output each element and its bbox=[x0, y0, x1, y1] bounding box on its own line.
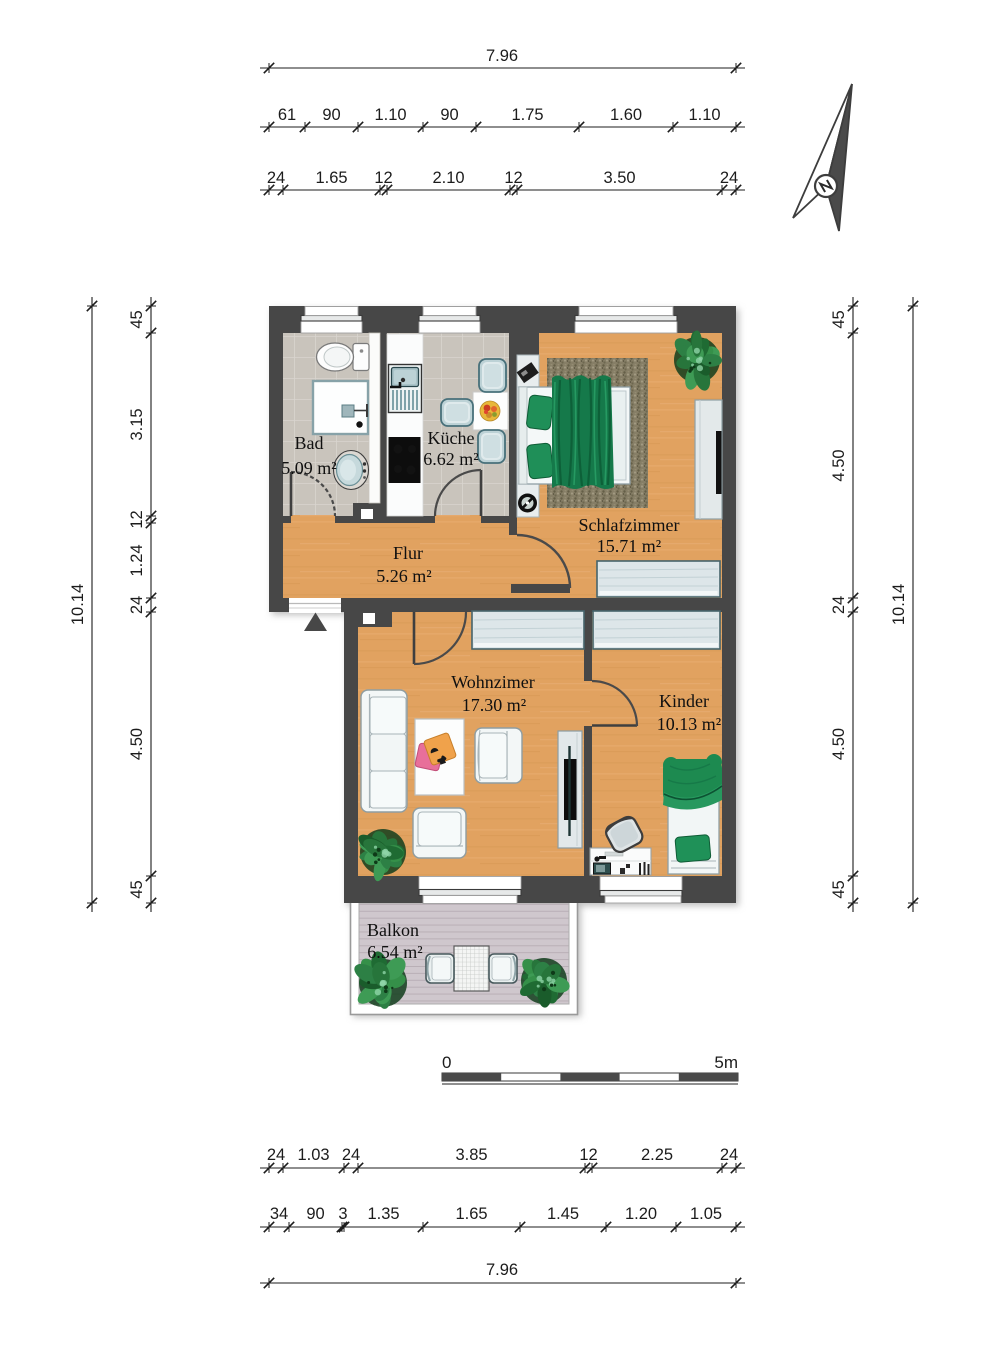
svg-text:12: 12 bbox=[504, 169, 522, 187]
svg-text:45: 45 bbox=[830, 310, 848, 328]
svg-text:Schlafzimmer: Schlafzimmer bbox=[579, 515, 680, 535]
svg-text:3: 3 bbox=[338, 1205, 347, 1223]
svg-text:17.30 m²: 17.30 m² bbox=[462, 695, 526, 715]
svg-text:Bad: Bad bbox=[295, 433, 324, 453]
svg-text:4.50: 4.50 bbox=[830, 449, 848, 481]
svg-text:24: 24 bbox=[267, 1146, 285, 1164]
svg-text:1.20: 1.20 bbox=[625, 1205, 657, 1223]
svg-text:1.10: 1.10 bbox=[688, 106, 720, 124]
svg-text:6.54 m²: 6.54 m² bbox=[367, 942, 422, 962]
svg-text:12: 12 bbox=[374, 169, 392, 187]
svg-text:34: 34 bbox=[270, 1205, 288, 1223]
svg-text:6.62 m²: 6.62 m² bbox=[423, 449, 478, 469]
svg-text:45: 45 bbox=[128, 880, 146, 898]
svg-text:2.10: 2.10 bbox=[432, 169, 464, 187]
svg-text:12: 12 bbox=[579, 1146, 597, 1164]
svg-text:4.50: 4.50 bbox=[830, 728, 848, 760]
svg-text:5m: 5m bbox=[714, 1053, 738, 1072]
svg-text:5.09 m²: 5.09 m² bbox=[281, 458, 336, 478]
svg-text:7.96: 7.96 bbox=[486, 1261, 518, 1279]
svg-text:Flur: Flur bbox=[393, 543, 423, 563]
svg-text:3.15: 3.15 bbox=[128, 408, 146, 440]
svg-text:Wohnzimer: Wohnzimer bbox=[451, 672, 535, 692]
svg-text:24: 24 bbox=[128, 596, 146, 614]
svg-text:24: 24 bbox=[720, 1146, 738, 1164]
svg-text:1.05: 1.05 bbox=[690, 1205, 722, 1223]
svg-text:3.50: 3.50 bbox=[603, 169, 635, 187]
svg-text:24: 24 bbox=[830, 596, 848, 614]
svg-text:Küche: Küche bbox=[428, 428, 475, 448]
svg-text:1.35: 1.35 bbox=[367, 1205, 399, 1223]
svg-text:1.24: 1.24 bbox=[128, 544, 146, 576]
svg-text:15.71 m²: 15.71 m² bbox=[597, 536, 661, 556]
svg-text:4.50: 4.50 bbox=[128, 728, 146, 760]
svg-text:12: 12 bbox=[128, 510, 146, 528]
svg-text:1.75: 1.75 bbox=[511, 106, 543, 124]
svg-text:45: 45 bbox=[830, 880, 848, 898]
svg-text:Kinder: Kinder bbox=[659, 691, 709, 711]
svg-text:1.10: 1.10 bbox=[374, 106, 406, 124]
svg-text:2.25: 2.25 bbox=[641, 1146, 673, 1164]
svg-text:10.13 m²: 10.13 m² bbox=[657, 714, 721, 734]
svg-text:7.96: 7.96 bbox=[486, 47, 518, 65]
svg-text:90: 90 bbox=[306, 1205, 324, 1223]
svg-text:Balkon: Balkon bbox=[367, 920, 419, 940]
svg-text:1.60: 1.60 bbox=[610, 106, 642, 124]
svg-text:1.65: 1.65 bbox=[315, 169, 347, 187]
svg-text:1.65: 1.65 bbox=[455, 1205, 487, 1223]
svg-text:5.26 m²: 5.26 m² bbox=[376, 566, 431, 586]
svg-text:90: 90 bbox=[440, 106, 458, 124]
svg-text:10.14: 10.14 bbox=[69, 584, 87, 625]
svg-text:45: 45 bbox=[128, 310, 146, 328]
svg-text:24: 24 bbox=[342, 1146, 360, 1164]
svg-text:10.14: 10.14 bbox=[890, 584, 908, 625]
svg-text:3.85: 3.85 bbox=[455, 1146, 487, 1164]
svg-text:24: 24 bbox=[267, 169, 285, 187]
svg-text:61: 61 bbox=[278, 106, 296, 124]
svg-text:1.03: 1.03 bbox=[297, 1146, 329, 1164]
svg-text:90: 90 bbox=[322, 106, 340, 124]
svg-text:0: 0 bbox=[442, 1053, 451, 1072]
svg-text:1.45: 1.45 bbox=[547, 1205, 579, 1223]
svg-text:24: 24 bbox=[720, 169, 738, 187]
